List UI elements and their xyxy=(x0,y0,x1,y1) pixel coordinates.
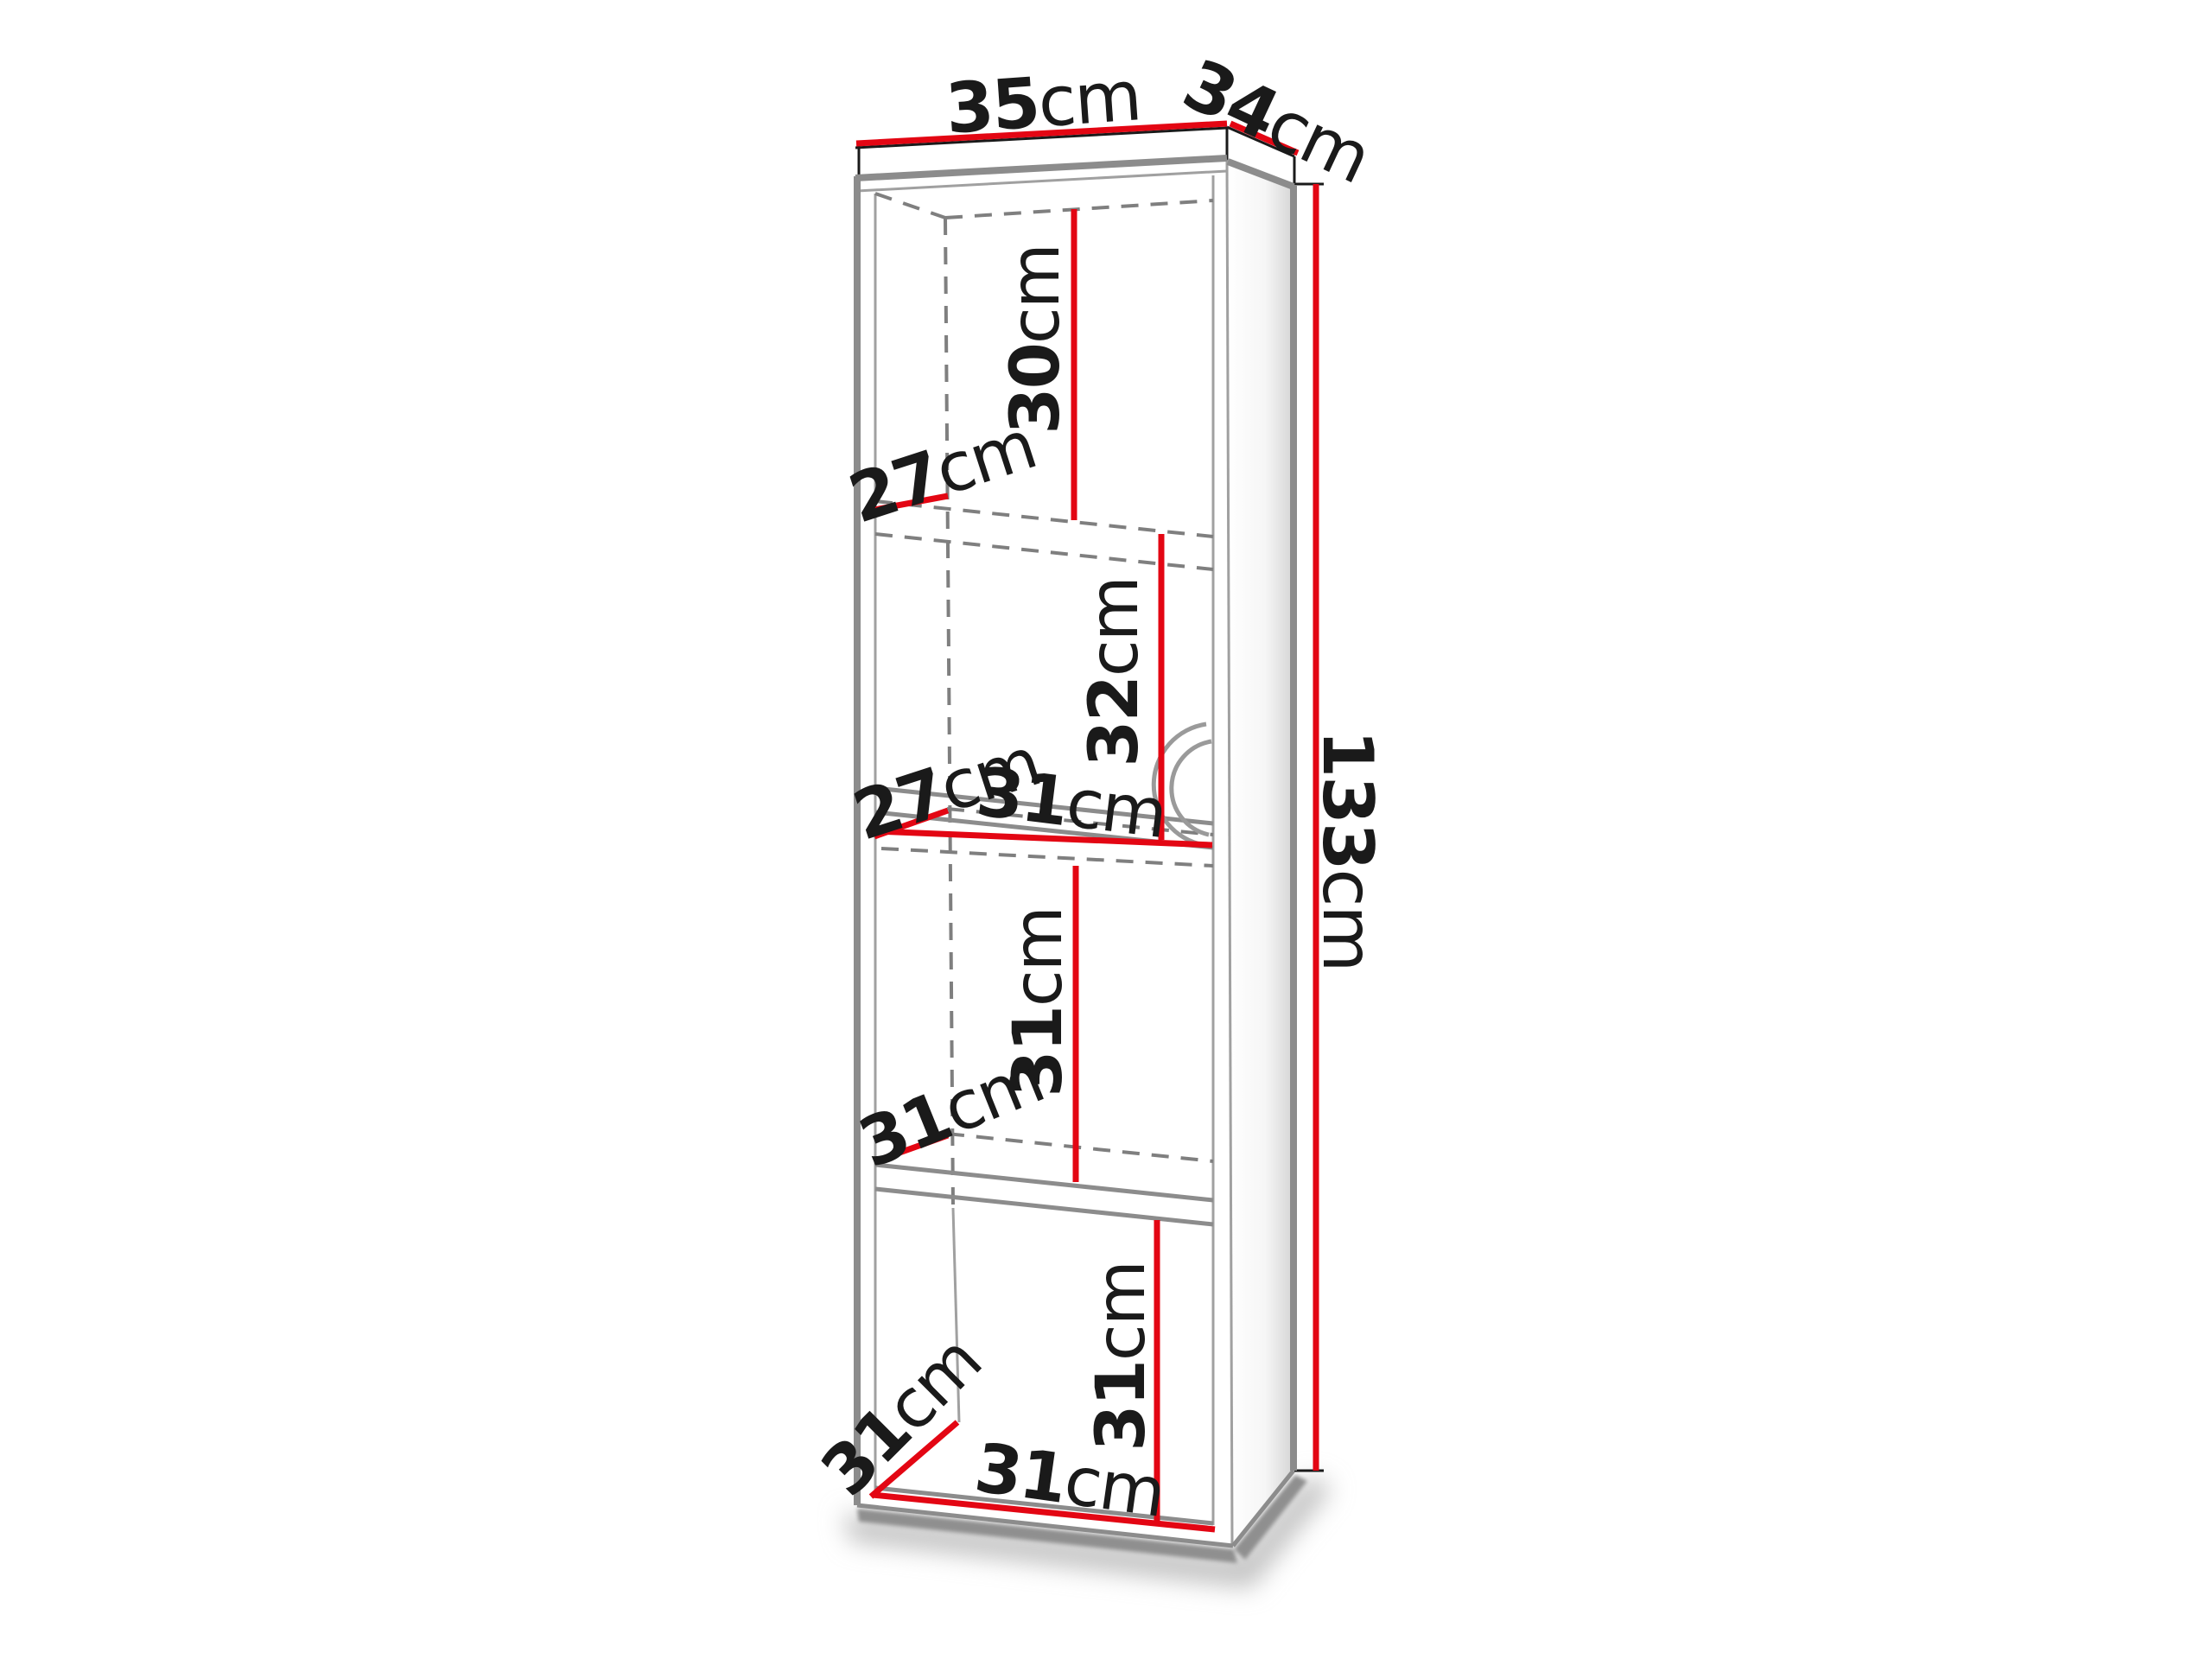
dim-label-comp4-height: 31cm xyxy=(1083,1262,1160,1451)
diagram-canvas: 35cm 34cm 133cm 30cm 27cm 32cm 27cm 31cm… xyxy=(0,0,2212,1659)
dim-label-comp2-height: 32cm xyxy=(1076,577,1154,766)
dim-label-top-width: 35cm xyxy=(943,55,1142,149)
dim-label-total-height: 133cm xyxy=(1307,730,1388,971)
side-panel xyxy=(1227,161,1294,1546)
dim-label-comp1-height: 30cm xyxy=(997,245,1075,434)
